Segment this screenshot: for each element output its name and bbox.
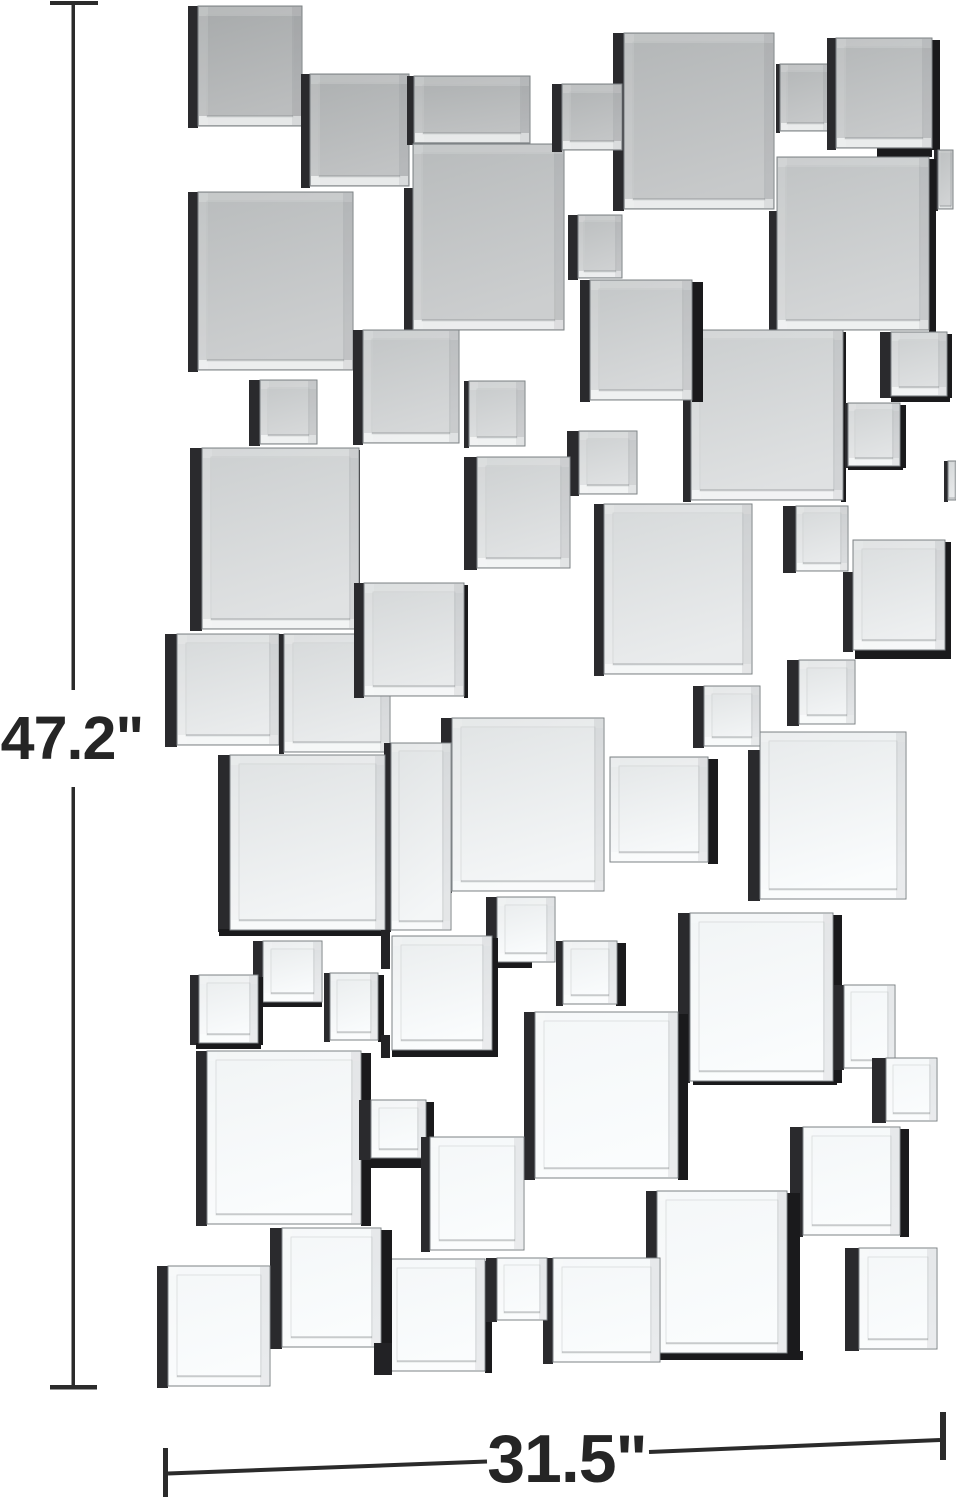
- svg-text:31.5": 31.5": [487, 1421, 647, 1497]
- svg-text:47.2": 47.2": [1, 704, 144, 772]
